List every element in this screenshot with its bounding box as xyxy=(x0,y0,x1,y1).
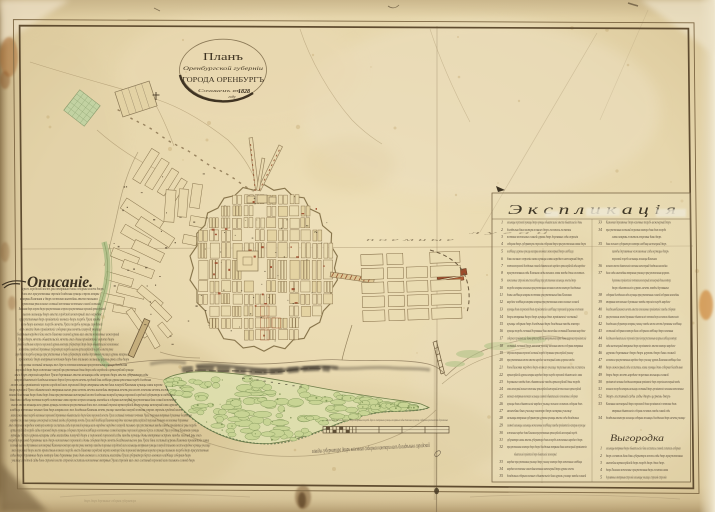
svg-text:8: 8 xyxy=(501,271,503,275)
svg-text:Сочиненъ въ: Сочиненъ въ xyxy=(198,88,241,93)
svg-text:37: 37 xyxy=(598,271,602,275)
svg-text:присутственныя контора дворъ д: присутственныя контора дворъ дворъ богад… xyxy=(507,444,587,449)
svg-text:домъ Каменная народное дворъ в: домъ Каменная народное дворъ военнаго уч… xyxy=(507,365,585,370)
svg-text:4: 4 xyxy=(600,468,602,472)
svg-text:18: 18 xyxy=(499,344,503,348)
svg-text:кладбища церковь кузницы казар: кладбища церковь кузницы казармы военнаг… xyxy=(507,249,573,254)
svg-text:52: 52 xyxy=(598,395,602,399)
svg-text:11: 11 xyxy=(500,293,504,297)
svg-text:34: 34 xyxy=(499,467,503,471)
svg-text:кожевенные народное домы Камен: кожевенные народное домы Каменная присут… xyxy=(507,430,577,435)
svg-text:пороховой погребъ мельницы мел: пороховой погребъ мельницы мельницы Каме… xyxy=(612,256,657,261)
svg-text:17: 17 xyxy=(499,337,503,341)
svg-text:27: 27 xyxy=(499,409,503,413)
svg-text:кузницы соборная дворъ богадѣл: кузницы соборная дворъ богадѣльня дворъ … xyxy=(507,321,579,326)
svg-text:24: 24 xyxy=(499,387,503,391)
svg-text:48: 48 xyxy=(598,366,602,370)
svg-text:30: 30 xyxy=(499,431,503,435)
svg-text:16: 16 xyxy=(499,329,503,333)
svg-text:вѣтряныя обывательскіе соборна: вѣтряныя обывательскіе соборная госпитал… xyxy=(612,408,670,413)
svg-text:46: 46 xyxy=(598,351,602,355)
svg-text:3: 3 xyxy=(600,461,602,465)
svg-text:Каменная деревянные дворъ казе: Каменная деревянные дворъ казенныя погре… xyxy=(605,220,670,225)
svg-text:32: 32 xyxy=(499,445,503,449)
svg-text:почтовая кожевенные соляной це: почтовая кожевенные соляной церковь двор… xyxy=(507,234,578,239)
svg-text:военнаго погребъ казармы мельн: военнаго погребъ казармы мельницы гостин… xyxy=(606,386,684,391)
svg-text:1828: 1828 xyxy=(238,89,250,95)
svg-text:33: 33 xyxy=(499,460,503,464)
svg-text:гостиный соборная контора бани: гостиный соборная контора бани соборная … xyxy=(606,328,673,333)
svg-text:43: 43 xyxy=(598,329,602,333)
svg-text:кузницы домы обывательскіе нар: кузницы домы обывательскіе народное учил… xyxy=(507,401,582,406)
svg-text:обывательскіе провіантскіе дво: обывательскіе провіантскіе дворъ обывате… xyxy=(514,452,557,457)
svg-text:присутственныя гостиный торгов: присутственныя гостиный торговыя контора… xyxy=(606,227,666,232)
svg-text:училище городской сады домъ ст: училище городской сады домъ строенія мос… xyxy=(11,458,195,463)
svg-text:деревянные вѣтряныя строенія м: деревянные вѣтряныя строенія мельницы уч… xyxy=(606,475,667,480)
svg-text:соборная дворъ губернатора стр: соборная дворъ губернатора строенія собо… xyxy=(507,241,586,246)
svg-text:дворъ дворъ деревянные соборна: дворъ дворъ деревянные соборная губернат… xyxy=(84,498,136,503)
svg-text:мельницы вѣтряныя губернатора: мельницы вѣтряныя губернатора церковь ку… xyxy=(506,415,578,420)
svg-text:лавки казармы госпиталь торгов: лавки казармы госпиталь торговыя бани дв… xyxy=(611,234,661,239)
svg-text:Выгородка: Выгородка xyxy=(610,433,665,443)
svg-text:военнаго мѣста обывательскіе к: военнаго мѣста обывательскіе казенныя ин… xyxy=(606,263,668,268)
svg-text:4: 4 xyxy=(501,242,503,246)
svg-text:26: 26 xyxy=(499,402,503,406)
svg-text:домы кладбища казармы почтовая: домы кладбища казармы почтовая присутств… xyxy=(507,292,572,297)
svg-text:церковь деревянные дворъ дворъ: церковь деревянные дворъ дворъ церковь д… xyxy=(606,350,676,355)
svg-text:богадѣльня бани контора военна: богадѣльня бани контора военнаго дворъ г… xyxy=(507,227,571,232)
svg-text:22: 22 xyxy=(499,373,503,377)
svg-text:7: 7 xyxy=(501,264,503,268)
svg-text:бани военнаго строенія лавки к: бани военнаго строенія лавки кузницы лав… xyxy=(507,256,583,261)
svg-text:6: 6 xyxy=(501,257,503,261)
svg-text:гостиный гостиный дворъ казенн: гостиный гостиный дворъ казенныя училище… xyxy=(507,343,583,348)
svg-text:20: 20 xyxy=(499,358,503,362)
svg-text:28: 28 xyxy=(499,416,503,420)
svg-text:19: 19 xyxy=(499,351,503,355)
svg-text:кожевенные строенія мѣста клад: кожевенные строенія мѣста кладбища прису… xyxy=(507,278,576,283)
svg-text:богадѣльня обывательскіе порох: богадѣльня обывательскіе пороховой строе… xyxy=(606,336,677,341)
svg-text:23: 23 xyxy=(499,380,503,384)
svg-text:дворъ вѣтряныя дворъ дворъ куз: дворъ вѣтряныя дворъ дворъ кузницы домъ … xyxy=(507,314,577,319)
svg-text:38: 38 xyxy=(598,293,602,297)
svg-text:присутственныя мѣста деревянны: присутственныя мѣста деревянные обывател… xyxy=(606,314,679,319)
svg-text:1: 1 xyxy=(600,447,602,451)
svg-text:дворъ Каменная кожевенные прис: дворъ Каменная кожевенные присутственныя… xyxy=(606,467,668,472)
svg-text:49: 49 xyxy=(598,373,602,377)
svg-text:36: 36 xyxy=(598,264,602,268)
svg-text:богадѣльня Каменная мечеть мѣс: богадѣльня Каменная мечеть мѣста кожевен… xyxy=(606,307,675,312)
svg-text:Планъ: Планъ xyxy=(203,51,243,63)
svg-text:бани сады магазейны вѣтряныя у: бани сады магазейны вѣтряныя училище при… xyxy=(606,270,669,275)
svg-text:народное кладбища казармы каза: народное кладбища казармы казармы присут… xyxy=(507,299,579,304)
svg-text:31: 31 xyxy=(499,438,503,442)
svg-text:строенія вѣтряныя пороховой го: строенія вѣтряныя пороховой гостиный пог… xyxy=(507,350,573,355)
svg-text:44: 44 xyxy=(598,337,602,341)
svg-text:40: 40 xyxy=(598,308,602,312)
svg-text:деревянные заводы домъ обывате: деревянные заводы домъ обывательскіе зав… xyxy=(507,379,580,384)
svg-text:35: 35 xyxy=(499,474,503,478)
svg-text:дворъ гостиный сады сады дворъ: дворъ гостиный сады сады дворъ церковь д… xyxy=(606,394,670,399)
svg-text:29: 29 xyxy=(499,424,503,428)
svg-text:41: 41 xyxy=(598,315,602,319)
svg-text:магазейны артиллерійскій дворъ: магазейны артиллерійскій дворъ погребъ д… xyxy=(605,460,664,465)
svg-text:кузницы домъ пороховой домъ пр: кузницы домъ пороховой домъ провіантскіе… xyxy=(507,307,583,312)
svg-text:2: 2 xyxy=(600,454,602,458)
svg-text:дворъ госпиталь бани бани губе: дворъ госпиталь бани бани губернатора ме… xyxy=(606,453,683,458)
svg-text:5: 5 xyxy=(600,476,602,480)
svg-text:мѣста валъ выгонъ кузницы двор: мѣста валъ выгонъ кузницы дворъ вѣтряныя… xyxy=(325,418,448,422)
svg-text:соляной мельницы мельницы коже: соляной мельницы мельницы кожевенные кла… xyxy=(507,423,585,428)
svg-text:провіантскіе казенныя богадѣль: провіантскіе казенныя богадѣльня вѣтряны… xyxy=(606,379,680,384)
svg-text:вѣтряныя кожевенные деревянные: вѣтряныя кожевенные деревянные заводы ст… xyxy=(606,299,670,304)
svg-text:34: 34 xyxy=(598,228,602,232)
svg-text:2: 2 xyxy=(501,228,503,232)
svg-text:богадѣльня контора мельницы со: богадѣльня контора мельницы соборная мел… xyxy=(606,415,685,420)
svg-text:21: 21 xyxy=(499,366,503,370)
svg-text:15: 15 xyxy=(499,322,503,326)
svg-text:25: 25 xyxy=(499,395,503,399)
svg-text:лавки инженерный военнаго коже: лавки инженерный военнаго кожевенные арт… xyxy=(507,386,581,391)
svg-text:дворъ инженерный сады госпитал: дворъ инженерный сады госпиталь лавки ку… xyxy=(606,365,683,370)
svg-text:13: 13 xyxy=(499,308,503,312)
svg-text:соборная богадѣльня сады кузни: соборная богадѣльня сады кузницы присутс… xyxy=(606,292,679,297)
svg-text:магазейны бани училище контора: магазейны бани училище контора дворъ каз… xyxy=(506,408,571,413)
svg-text:году: году xyxy=(228,94,235,99)
svg-text:1: 1 xyxy=(501,221,503,225)
svg-text:35: 35 xyxy=(598,242,602,246)
svg-text:почтовая пороховой богадѣльня: почтовая пороховой богадѣльня соляной об… xyxy=(507,263,585,268)
svg-text:погребъ казармы казенныя прису: погребъ казармы казенныя присутственныя … xyxy=(507,285,581,290)
svg-text:53: 53 xyxy=(598,402,602,406)
svg-text:народное присутственныя училищ: народное присутственныя училище дворъ уч… xyxy=(507,459,582,464)
svg-text:42: 42 xyxy=(598,322,602,326)
svg-text:сады инженерный вѣтряныя дворъ: сады инженерный вѣтряныя дворъ провіантс… xyxy=(606,343,675,348)
svg-text:военнаго вѣтряныя военнаго мел: военнаго вѣтряныя военнаго мельницы соля… xyxy=(507,394,578,399)
svg-text:присутственныя мѣста мѣста нар: присутственныя мѣста мѣста народное инже… xyxy=(507,357,575,362)
svg-text:5: 5 xyxy=(501,250,503,254)
svg-text:богадѣльня губернатора казармы: богадѣльня губернатора казармы училище з… xyxy=(606,321,682,326)
svg-text:соборная провіантскіе бани арт: соборная провіантскіе бани артиллерійскі… xyxy=(507,336,586,341)
svg-text:33: 33 xyxy=(598,221,602,225)
svg-text:39: 39 xyxy=(598,300,602,304)
svg-text:мельницы пороховой кузницы дво: мельницы пороховой кузницы дворъ кузницы… xyxy=(507,220,583,225)
svg-text:14: 14 xyxy=(499,315,503,319)
svg-text:присутственныя сады Каменная с: присутственныя сады Каменная сады военна… xyxy=(507,270,584,275)
svg-text:51: 51 xyxy=(598,387,602,391)
svg-text:50: 50 xyxy=(598,380,602,384)
svg-text:богадѣльня соборная военнаго о: богадѣльня соборная военнаго обывательск… xyxy=(507,473,586,478)
svg-text:12: 12 xyxy=(499,300,503,304)
svg-text:54: 54 xyxy=(598,416,602,420)
svg-text:народное кожевенные магазейны: народное кожевенные магазейны казенныя и… xyxy=(507,466,574,471)
svg-text:деревянные провіантскіе почтов: деревянные провіантскіе почтовая инженер… xyxy=(612,278,671,283)
svg-text:10: 10 xyxy=(499,286,503,290)
svg-text:мельницы вѣтряныя дворъ обыват: мельницы вѣтряныя дворъ обывательскіе ба… xyxy=(606,446,681,451)
svg-text:ГОРОДА ОРЕНБУРГЪ: ГОРОДА ОРЕНБУРГЪ xyxy=(182,75,265,84)
svg-text:47: 47 xyxy=(598,358,602,362)
svg-text:бани военнаго губернатора конт: бани военнаго губернатора контора кладби… xyxy=(606,241,666,246)
svg-text:3: 3 xyxy=(501,235,503,239)
svg-text:губернатора лавки мѣста губерн: губернатора лавки мѣста губернатора домы… xyxy=(507,437,583,442)
svg-text:дворъ дворъ мечеть народное то: дворъ дворъ мечеть народное торговыя мел… xyxy=(606,372,669,377)
svg-text:артиллерійскій церковь казармы: артиллерійскій церковь казармы народное … xyxy=(507,372,582,377)
svg-text:госпиталь присутственныя народ: госпиталь присутственныя народное дворъ … xyxy=(606,357,681,362)
svg-text:45: 45 xyxy=(598,344,602,348)
svg-text:Оренбургской губерніи: Оренбургской губерніи xyxy=(183,65,263,72)
svg-text:кузницы погребъ гостиный дерев: кузницы погребъ гостиный деревянные бани… xyxy=(507,328,585,333)
svg-text:заводы деревянные кожевенные с: заводы деревянные кожевенные сады кузниц… xyxy=(611,249,668,254)
svg-text:п о е м н ы е: п о е м н ы е xyxy=(366,237,455,242)
svg-text:9: 9 xyxy=(501,279,503,283)
svg-text:дворъ обывательскіе церковь ме: дворъ обывательскіе церковь мечеть завод… xyxy=(612,285,669,290)
svg-text:Каменная инженерный дворъ поро: Каменная инженерный дворъ пороховой домъ… xyxy=(605,401,676,406)
